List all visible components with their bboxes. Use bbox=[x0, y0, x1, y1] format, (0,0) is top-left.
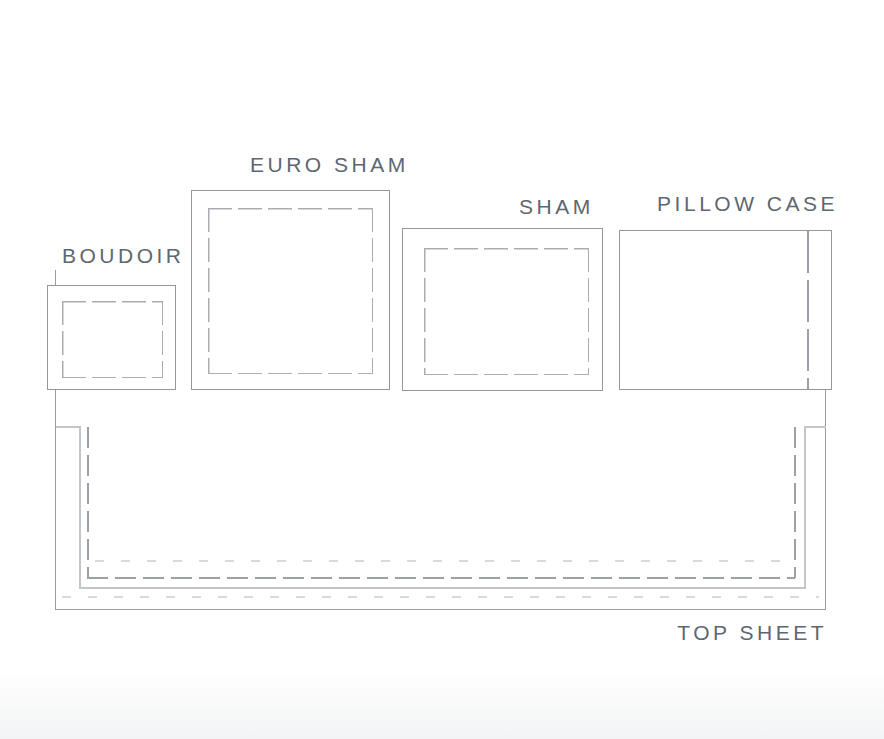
sham-label: SHAM bbox=[519, 195, 594, 219]
pillow-case-outline bbox=[619, 230, 832, 390]
sham-pillow-outline bbox=[402, 228, 603, 391]
top-sheet-label: TOP SHEET bbox=[677, 621, 827, 645]
euro-sham-stitch-border bbox=[208, 208, 373, 374]
boudoir-stitch-border bbox=[62, 301, 163, 378]
bottom-fade-gradient bbox=[0, 669, 884, 739]
top-sheet-faint-stitch-outer bbox=[62, 596, 819, 598]
top-sheet-stitch-bottom bbox=[87, 577, 795, 579]
euro-sham-label: EURO SHAM bbox=[250, 153, 409, 177]
bedding-sizes-diagram: TOP SHEET BOUDOIR EURO SHAM SHAM PILLOW … bbox=[0, 0, 884, 739]
top-sheet-hem-right bbox=[804, 426, 806, 588]
top-sheet-hem-left bbox=[79, 426, 81, 588]
top-sheet-hem-hook-right bbox=[804, 426, 826, 428]
pillow-case-label: PILLOW CASE bbox=[657, 192, 838, 216]
top-sheet-hem-bottom bbox=[79, 587, 806, 589]
top-sheet-stitch-left bbox=[87, 427, 89, 578]
top-sheet-hem-hook-left bbox=[56, 426, 80, 428]
pillow-case-fold-stitch-line bbox=[807, 231, 809, 389]
sham-stitch-border bbox=[424, 248, 589, 375]
boudoir-label: BOUDOIR bbox=[62, 244, 185, 268]
top-sheet-stitch-right bbox=[794, 427, 796, 578]
top-sheet-faint-stitch-inner bbox=[95, 560, 789, 562]
boudoir-pillow-outline bbox=[47, 285, 176, 390]
euro-sham-pillow-outline bbox=[191, 190, 390, 390]
